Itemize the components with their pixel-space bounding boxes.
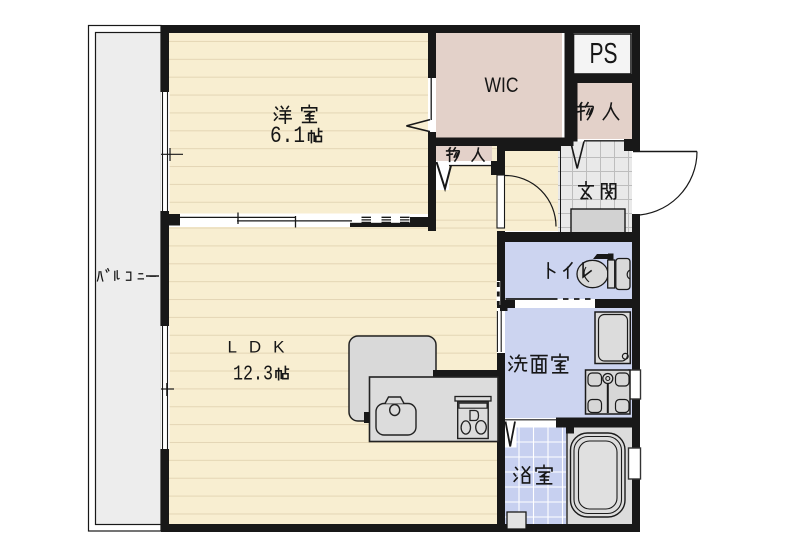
svg-text:LDK: LDK bbox=[228, 338, 286, 357]
svg-text:WIC: WIC bbox=[485, 73, 519, 97]
svg-text:PS: PS bbox=[590, 38, 618, 70]
svg-text:6.1: 6.1 bbox=[270, 123, 305, 150]
svg-text:12.3: 12.3 bbox=[233, 364, 273, 387]
